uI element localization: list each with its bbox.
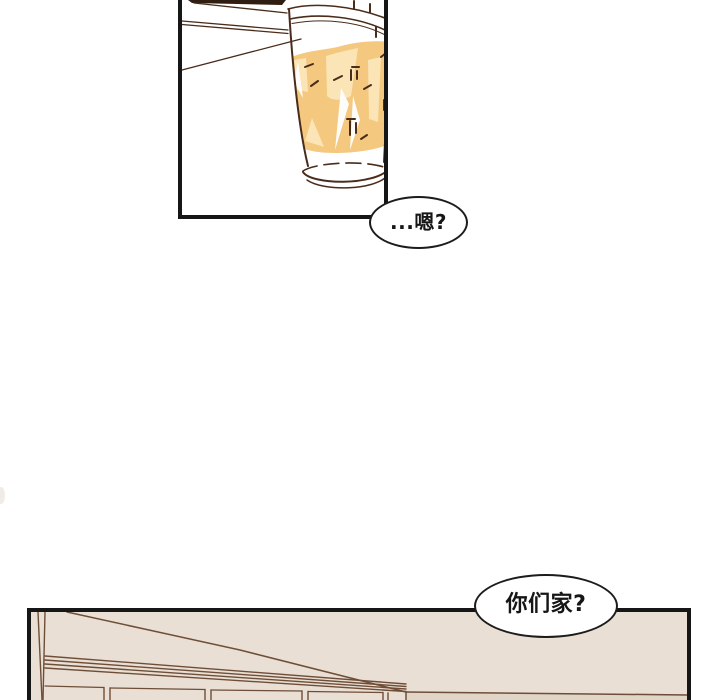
bubble-text: 你们家? [506,594,587,619]
bubble-text: ...嗯? [390,212,447,234]
panel-drink-cup [178,0,388,219]
speech-bubble-ellipsis: ...嗯? [369,196,468,249]
edge-smudge-mark [0,487,5,504]
comic-page: ...嗯? [0,0,720,700]
table-lines [182,3,301,70]
speech-bubble-question: 你们家? [474,574,618,638]
cup-bottom-rim [303,163,388,188]
drink-panel-art [178,0,388,219]
